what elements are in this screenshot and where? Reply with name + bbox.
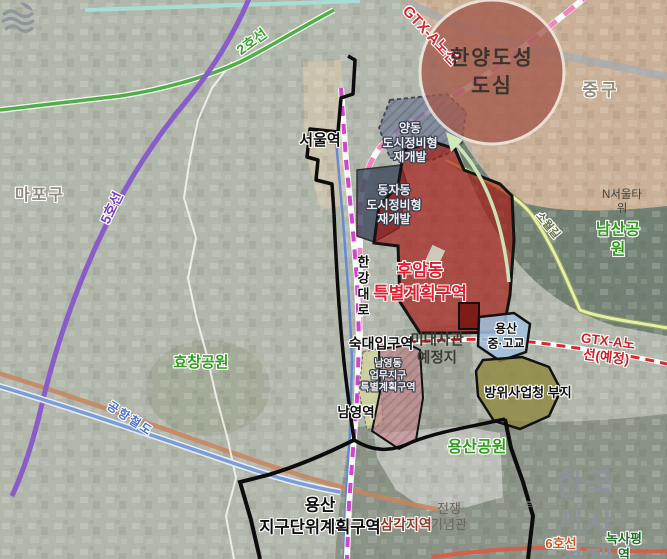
map-canvas	[0, 0, 667, 559]
hanyang-doseong-circle	[420, 0, 564, 144]
yongsan-plan-map: 2호선 GTX-A노선 한양도성 도심 중구 마포구 5호선 서울역 양동 도시…	[0, 0, 667, 559]
zone-namyeong-hatch	[372, 345, 423, 449]
zone-huam-dark-block	[459, 303, 479, 329]
logo-wave-icon	[0, 0, 36, 36]
